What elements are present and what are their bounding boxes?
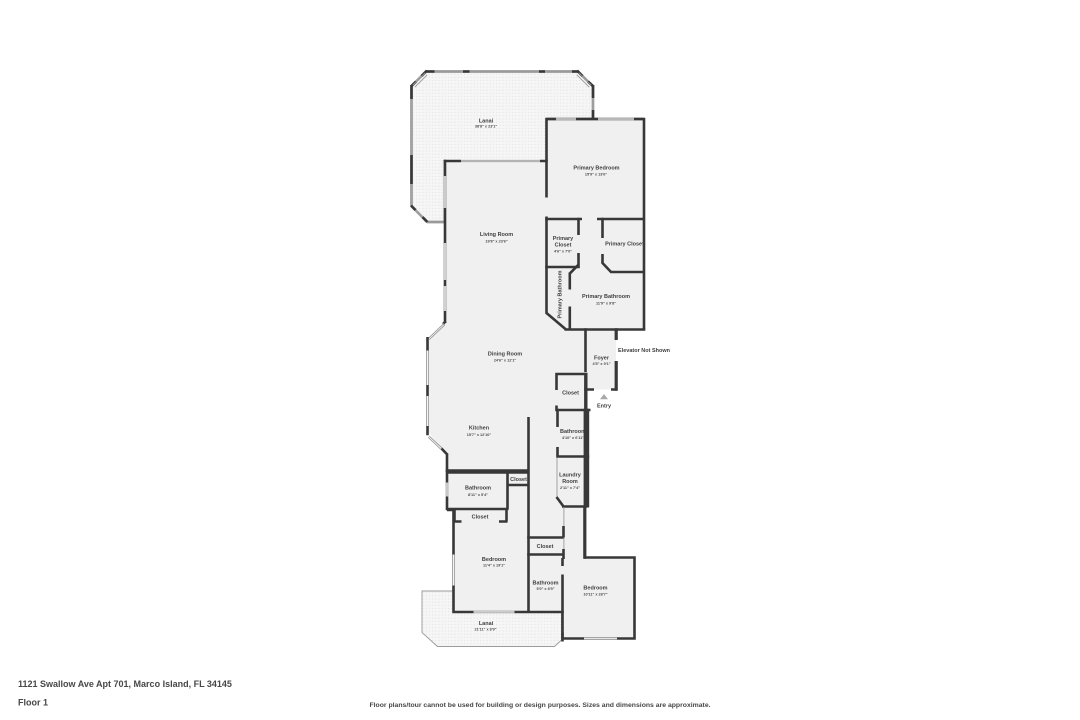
svg-text:Closet: Closet <box>472 515 489 521</box>
svg-text:Closet: Closet <box>555 243 572 249</box>
svg-text:Elevator Not Shown: Elevator Not Shown <box>618 348 671 354</box>
svg-text:Living Room: Living Room <box>480 232 513 238</box>
svg-text:11'9" x 9'8": 11'9" x 9'8" <box>596 302 616 306</box>
svg-text:24'6" x 12'1": 24'6" x 12'1" <box>494 359 516 363</box>
svg-text:11'4" x 19'1": 11'4" x 19'1" <box>483 564 505 568</box>
svg-text:Primary: Primary <box>553 236 574 242</box>
svg-text:15'9" x 13'6": 15'9" x 13'6" <box>585 173 607 177</box>
svg-text:4'10" x 6'11": 4'10" x 6'11" <box>562 436 584 440</box>
svg-text:Room: Room <box>562 479 578 485</box>
svg-text:21'11" x 8'9": 21'11" x 8'9" <box>474 627 496 631</box>
svg-text:Foyer: Foyer <box>594 356 610 362</box>
svg-text:Closet: Closet <box>562 391 579 397</box>
svg-text:15'7" x 12'10": 15'7" x 12'10" <box>467 433 492 437</box>
svg-text:Dining Room: Dining Room <box>488 352 522 358</box>
svg-text:Lanai: Lanai <box>479 621 494 627</box>
svg-text:Laundry: Laundry <box>559 473 582 479</box>
svg-text:8'11" x 5'4": 8'11" x 5'4" <box>468 493 488 497</box>
svg-text:Entry: Entry <box>597 404 612 410</box>
svg-text:2'11" x 7'4": 2'11" x 7'4" <box>560 486 580 490</box>
svg-text:5'0" x 8'9": 5'0" x 8'9" <box>536 587 554 591</box>
svg-text:Bedroom: Bedroom <box>583 586 607 592</box>
svg-text:Bathroom: Bathroom <box>560 429 586 435</box>
svg-text:10'11" x 28'7": 10'11" x 28'7" <box>583 593 607 597</box>
svg-text:4'5" x 9'1": 4'5" x 9'1" <box>592 362 610 366</box>
svg-text:Bathroom: Bathroom <box>465 486 491 492</box>
svg-text:Floor plans/tour cannot be use: Floor plans/tour cannot be used for buil… <box>369 702 710 709</box>
svg-text:19'8" x 23'6": 19'8" x 23'6" <box>485 240 507 244</box>
svg-text:Primary Bathroom: Primary Bathroom <box>558 270 564 318</box>
svg-text:Closet: Closet <box>537 544 554 550</box>
svg-text:Closet: Closet <box>510 477 527 483</box>
svg-text:1121 Swallow Ave Apt 701, Marc: 1121 Swallow Ave Apt 701, Marco Island, … <box>18 679 232 689</box>
svg-text:Kitchen: Kitchen <box>469 426 490 432</box>
svg-text:Bedroom: Bedroom <box>482 557 506 563</box>
svg-text:Primary Closet: Primary Closet <box>605 242 644 248</box>
svg-text:Primary Bedroom: Primary Bedroom <box>573 166 619 172</box>
svg-text:Bathroom: Bathroom <box>533 581 559 587</box>
svg-text:4'6" x 7'0": 4'6" x 7'0" <box>554 250 572 254</box>
svg-text:Primary Bathroom: Primary Bathroom <box>582 294 630 300</box>
svg-text:38'8" x 23'1": 38'8" x 23'1" <box>475 124 497 128</box>
svg-text:Floor 1: Floor 1 <box>18 698 48 708</box>
